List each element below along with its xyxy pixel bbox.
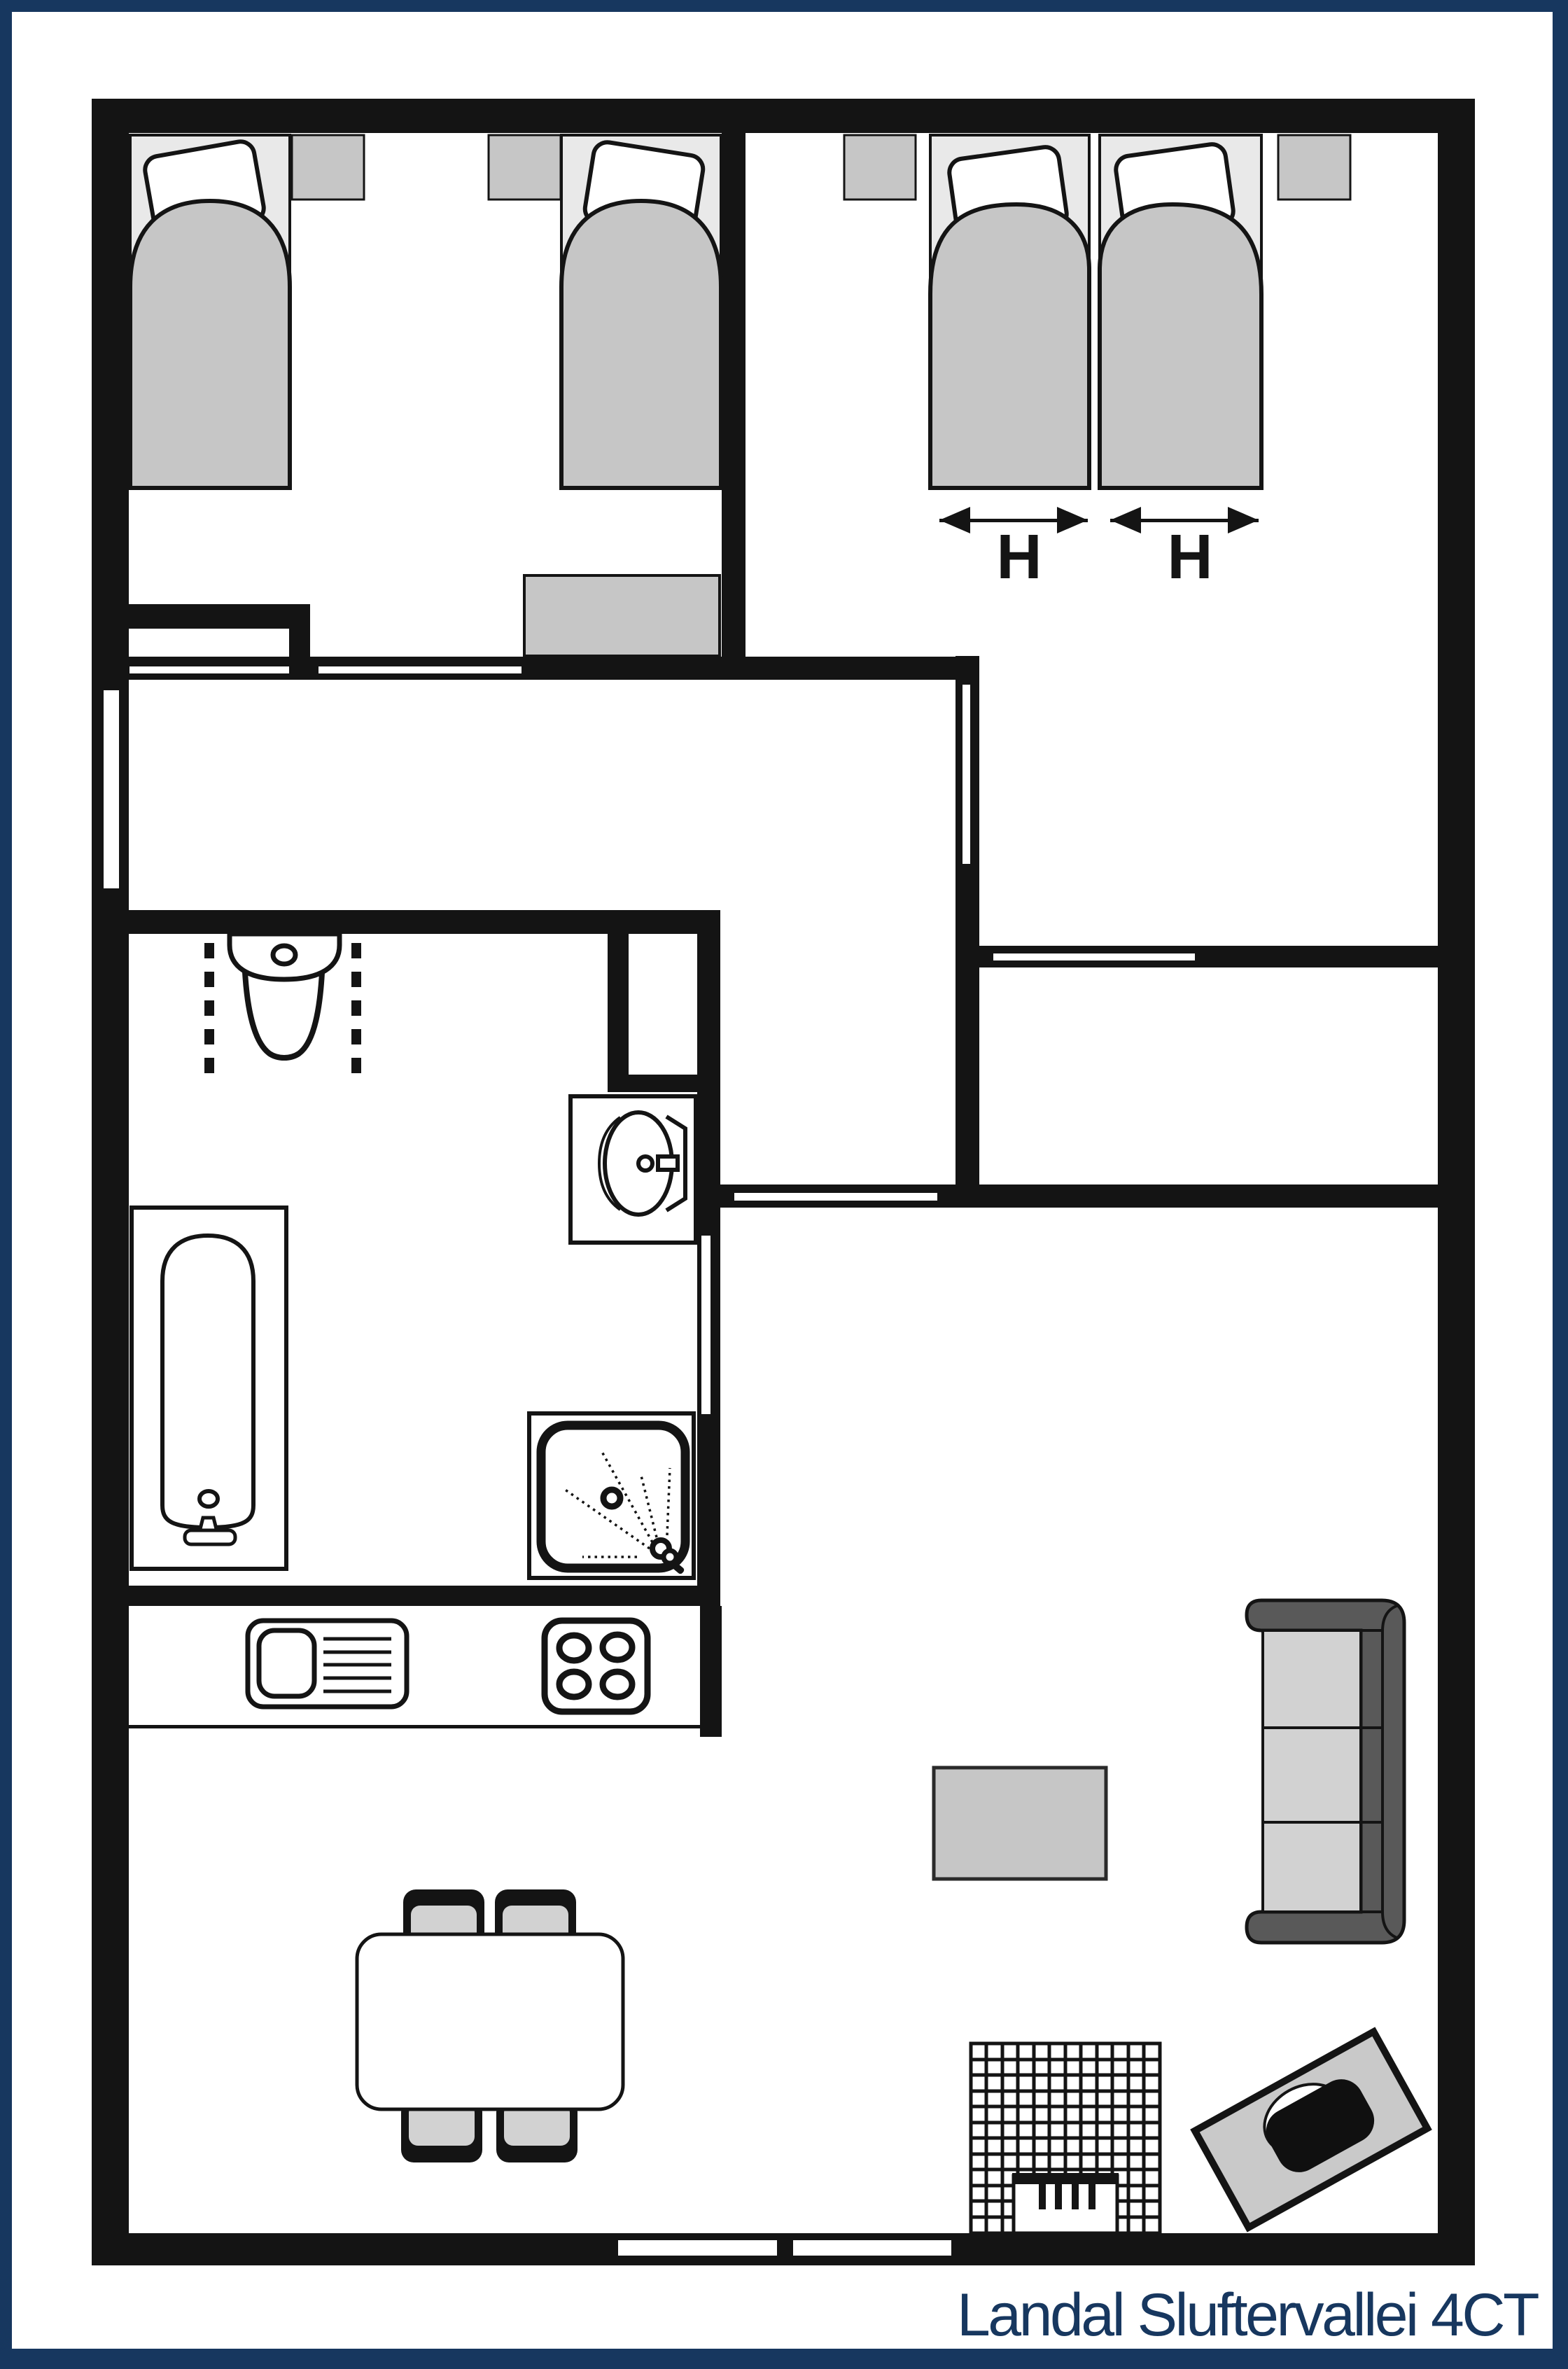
svg-text:H: H	[1168, 522, 1213, 592]
svg-text:Landal Sluftervallei 4CT: Landal Sluftervallei 4CT	[957, 2281, 1539, 2349]
svg-text:H: H	[997, 522, 1042, 592]
